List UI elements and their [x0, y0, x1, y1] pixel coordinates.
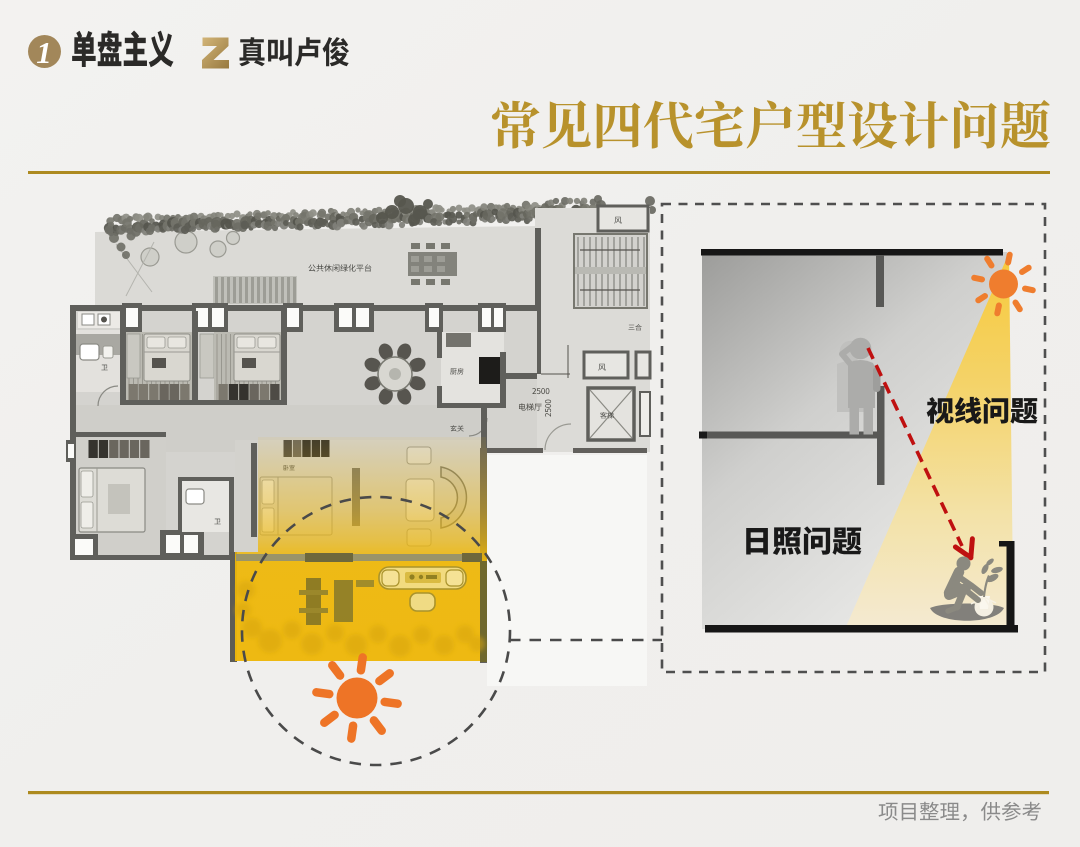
svg-text:1: 1	[36, 35, 52, 70]
